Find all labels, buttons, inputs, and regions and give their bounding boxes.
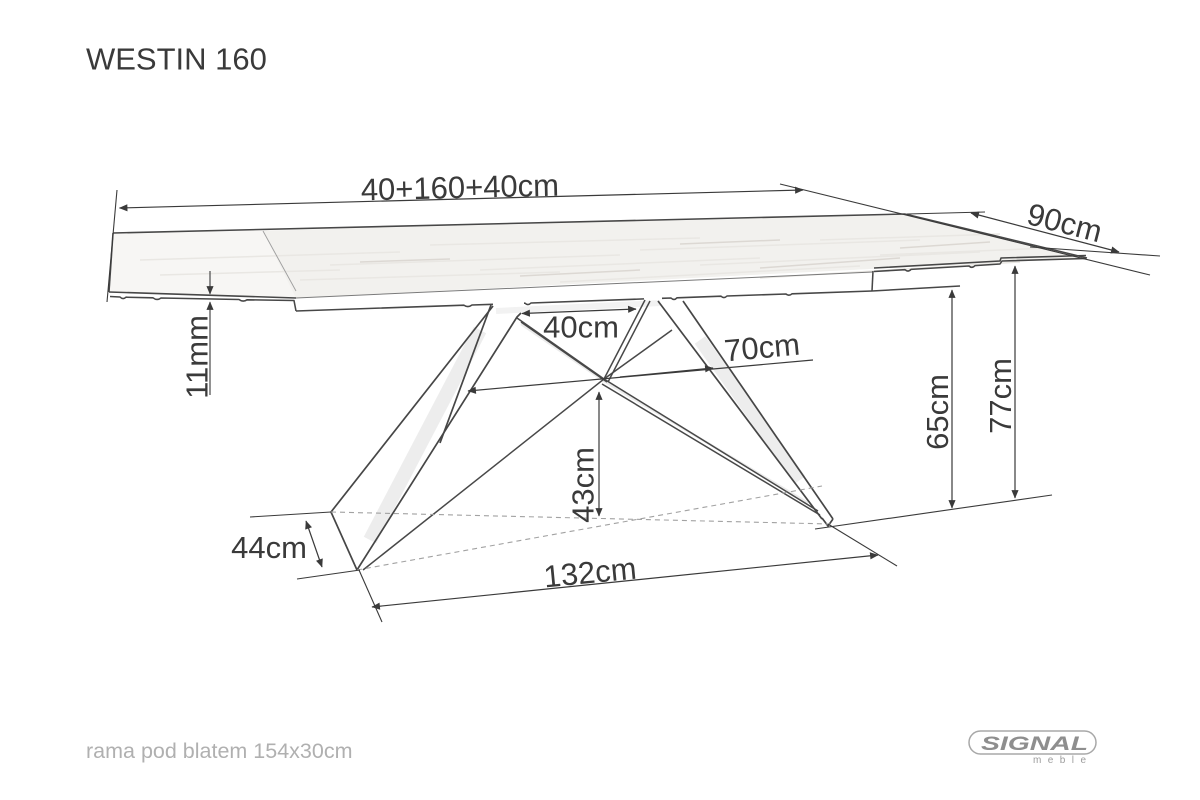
svg-text:70cm: 70cm [723, 327, 802, 369]
svg-text:65cm: 65cm [920, 374, 955, 450]
svg-text:90cm: 90cm [1024, 196, 1106, 249]
svg-text:WESTIN 160: WESTIN 160 [86, 42, 267, 77]
svg-text:rama pod blatem 154x30cm: rama pod blatem 154x30cm [86, 739, 353, 763]
svg-text:40+160+40cm: 40+160+40cm [360, 168, 559, 208]
svg-text:40cm: 40cm [543, 310, 619, 345]
svg-text:44cm: 44cm [231, 530, 307, 565]
svg-text:11mm: 11mm [180, 315, 215, 399]
svg-text:SIGNAL: SIGNAL [981, 734, 1088, 755]
svg-text:77cm: 77cm [983, 358, 1018, 434]
svg-text:132cm: 132cm [542, 551, 638, 595]
svg-text:43cm: 43cm [566, 447, 601, 523]
svg-text:meble: meble [1033, 755, 1086, 766]
